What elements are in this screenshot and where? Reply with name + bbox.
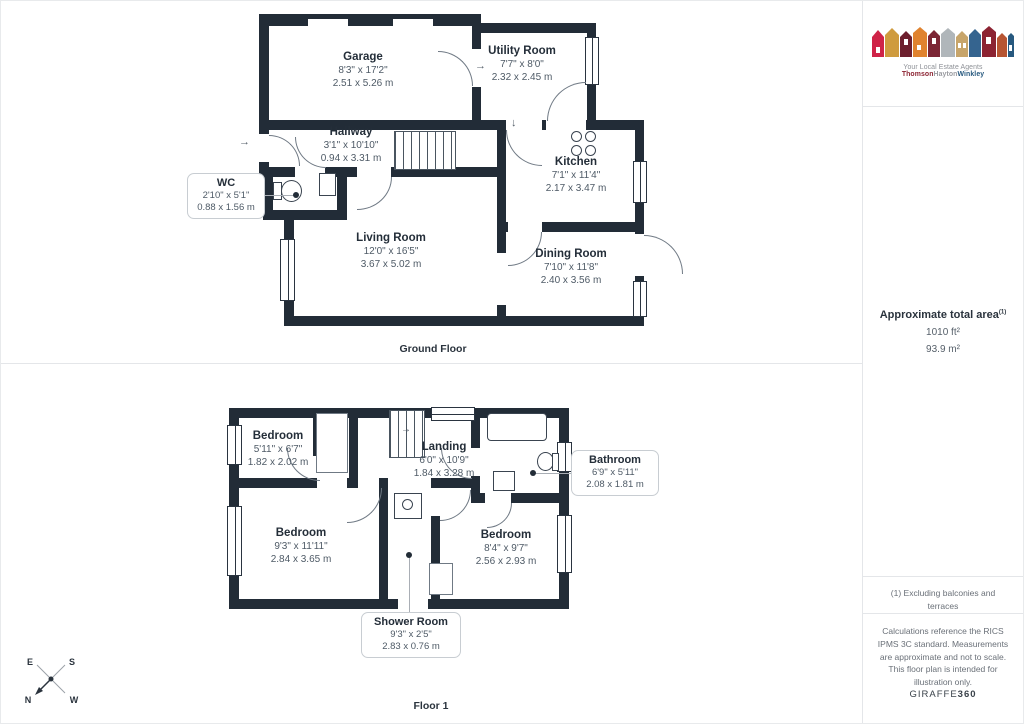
toilet-tank [552,453,559,471]
floor-label-ground: Ground Floor [399,343,466,355]
room-label-bedroom-2: Bedroom 9'3" x 11'11" 2.84 x 3.65 m [271,527,332,566]
door-opening [508,222,542,232]
stairs-arrow-icon: → [401,425,411,435]
room-name: Bathroom [576,454,654,466]
door-swing-arc [547,82,586,121]
floor-label-first: Floor 1 [413,700,448,712]
room-dims-metric: 2.83 x 0.76 m [366,641,456,653]
window [633,281,647,317]
room-label-dining-room: Dining Room 7'10" x 11'8" 2.40 x 3.56 m [535,248,607,287]
wall-segment [559,408,569,609]
window [585,37,599,85]
room-opening [497,253,506,305]
window [227,506,242,576]
stove-burner [571,131,582,142]
wall-segment [472,23,596,33]
total-area-block: Approximate total area(1) 1010 ft² 93.9 … [863,309,1023,355]
room-name: Utility Room [488,45,556,57]
wardrobe [316,413,348,473]
room-dims-imperial: 12'0" x 16'5" [356,245,426,258]
entry-arrow-icon: → [239,137,250,148]
door-arrow-icon: ↓ [511,118,517,129]
room-label-bedroom-3: Bedroom 8'4" x 9'7" 2.56 x 2.93 m [476,529,537,568]
door-swing-arc [438,51,473,86]
room-dims-metric: 1.82 x 2.02 m [248,456,309,469]
room-dims-metric: 0.94 x 3.31 m [321,152,382,165]
room-dims-imperial: 7'10" x 11'8" [535,261,607,274]
door-opening [357,167,391,177]
wall-segment [229,478,317,488]
sink [319,173,336,196]
callout-anchor-dot [406,552,412,558]
wall-segment [337,167,347,220]
agency-tagline: Your Local Estate Agents ThomsonHaytonWi… [863,64,1023,78]
room-label-hallway: Hallway 3'1" x 10'10" 0.94 x 3.31 m [321,126,382,165]
window [633,161,647,203]
room-dims-imperial: 7'1" x 11'4" [546,169,607,182]
room-dims-imperial: 8'4" x 9'7" [476,542,537,555]
door-swing-arc [440,490,471,521]
bay-window [280,239,295,301]
room-label-garage: Garage 8'3" x 17'2" 2.51 x 5.26 m [333,51,394,90]
agency-name-winkley: Winkley [958,71,985,78]
agency-name-thomson: Thomson [902,71,934,78]
agency-logo: Your Local Estate Agents ThomsonHaytonWi… [863,25,1023,78]
room-dims-imperial: 9'3" x 11'11" [271,540,332,553]
window [557,442,572,472]
door-opening [635,234,644,276]
front-door-opening [259,134,269,162]
room-label-bedroom-1: Bedroom 5'11" x 6'7" 1.82 x 2.02 m [248,430,309,469]
room-callout-wc: WC 2'10" x 5'1" 0.88 x 1.56 m [187,173,265,219]
bathtub [487,413,547,441]
garage-door-notch [393,19,433,28]
room-name: Hallway [321,126,382,138]
room-dims-imperial: 8'3" x 17'2" [333,64,394,77]
info-sidebar: Your Local Estate Agents ThomsonHaytonWi… [862,1,1023,723]
room-label-landing: Landing 6'0" x 10'9" 1.84 x 3.28 m [414,441,475,480]
window [431,407,475,421]
room-dims-metric: 2.08 x 1.81 m [576,479,654,491]
door-opening [431,488,440,516]
room-callout-bathroom: Bathroom 6'9" x 5'11" 2.08 x 1.81 m [571,450,659,496]
room-dims-metric: 2.56 x 2.93 m [476,555,537,568]
room-dims-metric: 2.84 x 3.65 m [271,553,332,566]
cupboard [429,563,453,595]
room-dims-imperial: 3'1" x 10'10" [321,139,382,152]
door-swing-arc [347,488,382,523]
floorplan-page: → → ↓ Garage 8'3" x 17'2" 2.51 x 5.26 m … [0,0,1024,724]
agency-name-hayton: Hayton [934,71,958,78]
window [557,515,572,573]
toilet [281,180,302,202]
garage-door-notch [308,19,348,28]
giraffe-brand: GIRAFFE [909,689,957,700]
room-dims-imperial: 2'10" x 5'1" [192,190,260,202]
callout-anchor-dot [293,192,299,198]
room-dims-metric: 0.88 x 1.56 m [192,202,260,214]
door-swing-arc [487,503,512,528]
door-opening [485,493,511,503]
footnote-ref: (1) [999,309,1006,315]
room-name: Garage [333,51,394,63]
door-swing-arc [506,130,542,166]
room-name: Bedroom [271,527,332,539]
room-dims-imperial: 7'7" x 8'0" [488,58,556,71]
compass-west-label: W [70,695,79,705]
disclaimer-text: Calculations reference the RICS IPMS 3C … [863,625,1023,689]
room-name: Landing [414,441,475,453]
room-name: Living Room [356,232,426,244]
floor-divider [1,363,862,364]
stove-burner [571,145,582,156]
callout-anchor-dot [530,470,536,476]
compass-rose: E S N W [13,647,89,711]
door-opening [398,599,428,609]
room-dims-imperial: 6'0" x 10'9" [414,454,475,467]
giraffe360-logo: GIRAFFE360 [863,689,1023,700]
room-name: Bedroom [476,529,537,541]
stove-burner [585,131,596,142]
compass-south-label: S [69,657,75,667]
area-footnote: (1) Excluding balconies and terraces [863,587,1023,613]
room-label-kitchen: Kitchen 7'1" x 11'4" 2.17 x 3.47 m [546,156,607,195]
room-dims-metric: 2.17 x 3.47 m [546,182,607,195]
room-dims-metric: 2.51 x 5.26 m [333,77,394,90]
callout-connector [409,557,410,613]
room-dims-imperial: 6'9" x 5'11" [576,467,654,479]
wall-segment [349,408,358,488]
door-arrow-icon: → [475,61,486,72]
sink [493,471,515,491]
callout-connector [535,473,571,474]
compass-east-label: E [27,657,33,667]
room-name: Bedroom [248,430,309,442]
wall-segment [284,316,644,326]
sidebar-divider [863,106,1023,107]
room-dims-metric: 2.32 x 2.45 m [488,71,556,84]
window [227,425,242,465]
door-swing-arc [357,177,392,210]
staircase [394,131,456,170]
stove-burner [585,145,596,156]
room-name: Dining Room [535,248,607,260]
callout-connector [263,195,296,196]
room-dims-metric: 3.67 x 5.02 m [356,258,426,271]
sidebar-divider [863,576,1023,577]
giraffe-suffix: 360 [958,689,977,700]
room-callout-shower-room: Shower Room 9'3" x 2'5" 2.83 x 0.76 m [361,612,461,658]
room-dims-imperial: 5'11" x 6'7" [248,443,309,456]
room-dims-imperial: 9'3" x 2'5" [366,629,456,641]
sidebar-divider [863,613,1023,614]
room-label-living-room: Living Room 12'0" x 16'5" 3.67 x 5.02 m [356,232,426,271]
compass-north-label: N [25,695,32,705]
room-dims-metric: 1.84 x 3.28 m [414,467,475,480]
room-dims-metric: 2.40 x 3.56 m [535,274,607,287]
shower-drain [402,499,413,510]
wall-segment [263,210,347,220]
wall-segment [259,14,481,26]
door-swing-arc [644,235,683,274]
total-area-title-text: Approximate total area [880,309,999,321]
total-area-imperial: 1010 ft² [863,327,1023,338]
tagline-text: Your Local Estate Agents [903,64,982,71]
total-area-metric: 93.9 m² [863,344,1023,355]
room-label-utility: Utility Room 7'7" x 8'0" 2.32 x 2.45 m [488,45,556,84]
room-name: WC [192,177,260,189]
door-opening [546,120,586,130]
wall-segment [259,14,269,130]
room-name: Kitchen [546,156,607,168]
agency-houses-logo [872,25,1014,59]
room-name: Shower Room [366,616,456,628]
total-area-title: Approximate total area(1) [863,309,1023,321]
